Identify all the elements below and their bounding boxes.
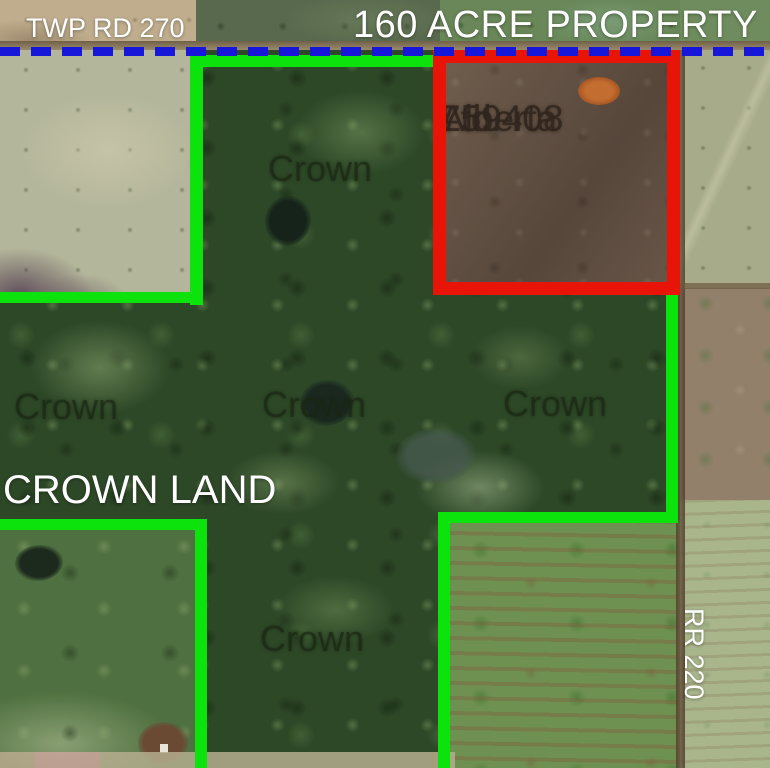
field-tile-west-quarter xyxy=(0,50,196,302)
clearcut-tile-southeast xyxy=(447,520,680,768)
field-boundary-road xyxy=(680,283,770,289)
crown-boundary-segment-south-west xyxy=(195,519,207,768)
field-tile-east-upper xyxy=(680,50,770,290)
crown-boundary-segment-west-upper xyxy=(190,50,203,305)
aerial-property-map: 160 ACRE PROPERTY TWP RD 270 CROWN LAND … xyxy=(0,0,770,768)
range-road-label: RR 220 xyxy=(678,608,709,700)
crown-boundary-segment-west-notch xyxy=(0,292,203,303)
crown-watermark: Crown xyxy=(503,383,607,425)
crown-watermark: Crown xyxy=(14,386,118,428)
crown-land-label: CROWN LAND xyxy=(3,468,276,513)
map-title: 160 ACRE PROPERTY xyxy=(353,4,758,47)
field-tile-east-middle xyxy=(680,288,770,500)
crown-boundary-segment-south-notch xyxy=(440,512,678,523)
meadow-patch xyxy=(470,325,570,390)
red-parcel-outline xyxy=(433,50,680,295)
crown-watermark: Crown xyxy=(260,618,364,660)
blue-dashed-road-line xyxy=(0,47,770,56)
township-road-label: TWP RD 270 xyxy=(26,13,185,44)
crown-boundary-segment-south-east xyxy=(438,512,450,768)
crown-watermark: Crown xyxy=(262,384,366,426)
crown-boundary-segment-north xyxy=(190,55,440,67)
crown-boundary-segment-east xyxy=(666,292,678,523)
crown-watermark: Crown xyxy=(268,148,372,190)
crown-boundary-segment-south-west-notch xyxy=(0,519,207,530)
south-road-surface xyxy=(0,752,455,768)
